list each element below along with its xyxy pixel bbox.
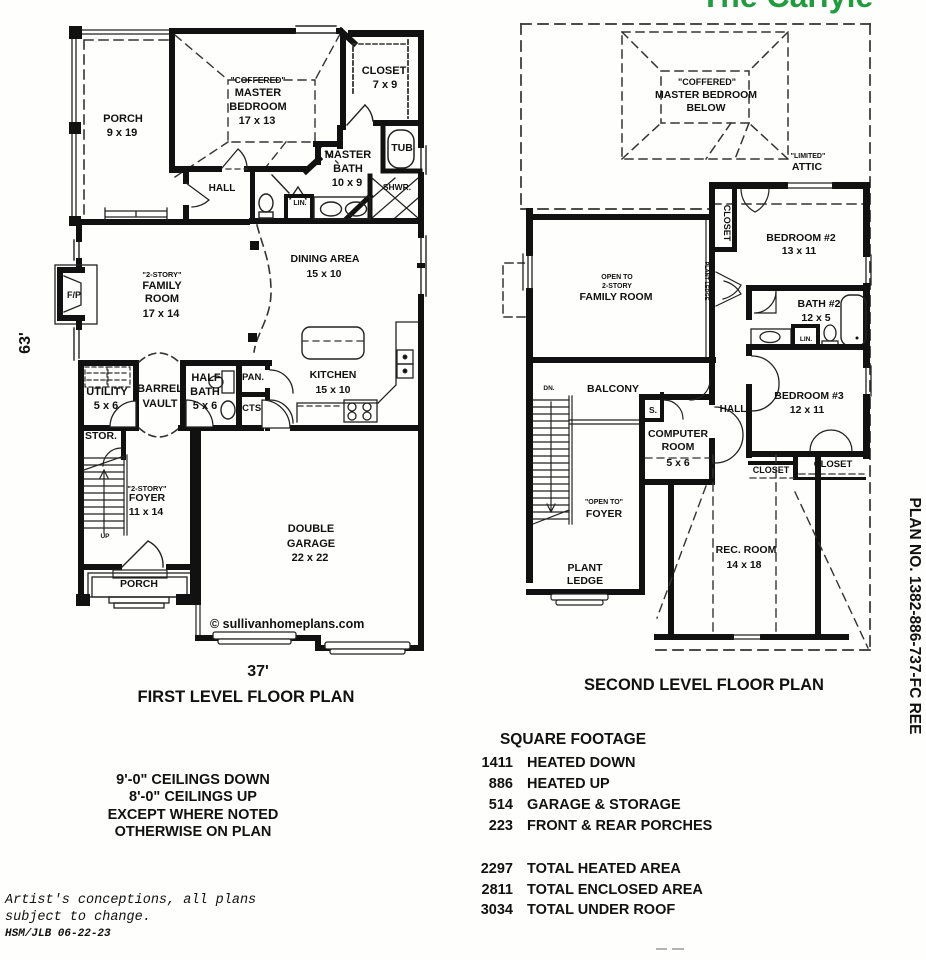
svg-text:7 x 9: 7 x 9 [373, 79, 397, 91]
svg-text:PORCH: PORCH [120, 578, 158, 590]
svg-text:886: 886 [489, 776, 513, 792]
svg-text:UTILITY: UTILITY [86, 386, 128, 398]
svg-text:LIN.: LIN. [800, 336, 812, 343]
svg-text:UP: UP [100, 533, 110, 540]
svg-text:"LIMITED": "LIMITED" [791, 153, 826, 160]
svg-text:BATH: BATH [333, 163, 363, 175]
svg-text:BEDROOM: BEDROOM [229, 101, 286, 113]
svg-text:OPEN TO: OPEN TO [601, 274, 633, 281]
svg-text:FAMILY: FAMILY [142, 280, 182, 292]
svg-text:HEATED UP: HEATED UP [527, 776, 610, 792]
svg-text:Artist's conceptions, all plan: Artist's conceptions, all plans [4, 893, 256, 908]
svg-text:HALL: HALL [209, 183, 236, 194]
svg-text:SQUARE FOOTAGE: SQUARE FOOTAGE [500, 731, 646, 748]
svg-text:37': 37' [247, 663, 269, 680]
svg-text:9'-0" CEILINGS DOWN: 9'-0" CEILINGS DOWN [116, 772, 270, 788]
svg-text:BALCONY: BALCONY [587, 383, 639, 395]
svg-text:15 x 10: 15 x 10 [306, 268, 341, 280]
svg-text:514: 514 [489, 797, 513, 813]
svg-text:DOUBLE: DOUBLE [288, 523, 334, 535]
svg-text:PLANT: PLANT [568, 562, 604, 574]
svg-text:FOYER: FOYER [586, 508, 623, 520]
svg-text:FIRST LEVEL FLOOR PLAN: FIRST LEVEL FLOOR PLAN [138, 688, 355, 706]
svg-text:9 x 19: 9 x 19 [107, 127, 138, 139]
svg-text:ROOM: ROOM [145, 293, 179, 305]
svg-text:CLOSET: CLOSET [722, 205, 732, 242]
svg-text:BATH #2: BATH #2 [798, 298, 841, 310]
svg-text:HALF: HALF [191, 372, 221, 384]
svg-text:OTHERWISE ON PLAN: OTHERWISE ON PLAN [115, 824, 272, 840]
svg-text:DINING AREA: DINING AREA [290, 253, 359, 265]
svg-text:EXCEPT WHERE NOTED: EXCEPT WHERE NOTED [108, 807, 279, 823]
svg-text:MASTER: MASTER [325, 149, 372, 161]
svg-text:CLOSET: CLOSET [753, 465, 790, 475]
svg-text:© sullivanhomeplans.com: © sullivanhomeplans.com [210, 617, 364, 631]
svg-text:PLANT LEDGE: PLANT LEDGE [703, 262, 709, 301]
svg-text:5 x 6: 5 x 6 [193, 400, 217, 412]
svg-text:LEDGE: LEDGE [567, 575, 603, 587]
svg-text:13 x 11: 13 x 11 [782, 245, 817, 257]
svg-text:SECOND LEVEL FLOOR PLAN: SECOND LEVEL FLOOR PLAN [584, 676, 824, 694]
svg-text:11 x 14: 11 x 14 [129, 506, 164, 518]
svg-text:PORCH: PORCH [103, 113, 143, 125]
svg-text:5 x 6: 5 x 6 [94, 400, 118, 412]
svg-text:ATTIC: ATTIC [792, 161, 823, 173]
svg-text:2297: 2297 [481, 861, 513, 877]
svg-text:PLAN NO. 1382-886-737-FC REE: PLAN NO. 1382-886-737-FC REE [906, 498, 923, 735]
svg-text:1411: 1411 [482, 755, 513, 771]
svg-text:TOTAL HEATED AREA: TOTAL HEATED AREA [527, 861, 681, 877]
svg-text:GARAGE & STORAGE: GARAGE & STORAGE [527, 797, 681, 813]
svg-text:REC. ROOM: REC. ROOM [716, 544, 777, 556]
svg-text:3034: 3034 [481, 902, 513, 918]
svg-text:8'-0" CEILINGS UP: 8'-0" CEILINGS UP [129, 789, 257, 805]
svg-text:2811: 2811 [482, 882, 513, 898]
svg-text:HEATED DOWN: HEATED DOWN [527, 755, 635, 771]
svg-text:12 x 5: 12 x 5 [801, 312, 830, 324]
svg-text:TOTAL UNDER ROOF: TOTAL UNDER ROOF [527, 902, 675, 918]
svg-text:subject to change.: subject to change. [5, 910, 151, 925]
svg-text:CTS.: CTS. [242, 403, 264, 414]
svg-text:SHWR.: SHWR. [383, 182, 411, 192]
svg-text:BARREL: BARREL [137, 383, 183, 395]
svg-text:GARAGE: GARAGE [287, 538, 335, 550]
svg-text:BEDROOM #3: BEDROOM #3 [774, 390, 844, 402]
svg-text:"COFFERED": "COFFERED" [231, 75, 286, 85]
svg-text:PAN.: PAN. [242, 372, 264, 383]
svg-text:17 x 13: 17 x 13 [239, 115, 276, 127]
svg-text:"OPEN TO": "OPEN TO" [585, 499, 623, 506]
svg-text:14 x 18: 14 x 18 [726, 559, 761, 571]
svg-text:"2-STORY": "2-STORY" [142, 270, 182, 279]
svg-text:10 x 9: 10 x 9 [332, 177, 363, 189]
svg-text:F/P: F/P [67, 290, 81, 300]
svg-text:BATH: BATH [190, 386, 220, 398]
svg-text:FAMILY ROOM: FAMILY ROOM [580, 291, 653, 303]
svg-text:TOTAL ENCLOSED AREA: TOTAL ENCLOSED AREA [527, 882, 703, 898]
svg-text:STOR.: STOR. [85, 430, 117, 442]
svg-text:5 x 6: 5 x 6 [666, 457, 690, 469]
svg-text:FRONT & REAR PORCHES: FRONT & REAR PORCHES [527, 818, 713, 834]
svg-text:TUB: TUB [391, 142, 413, 154]
svg-text:BEDROOM #2: BEDROOM #2 [766, 232, 836, 244]
svg-text:17 x 14: 17 x 14 [143, 308, 181, 320]
svg-text:LIN.: LIN. [293, 200, 306, 207]
svg-text:S.: S. [649, 405, 657, 415]
svg-text:MASTER: MASTER [235, 87, 282, 99]
svg-text:HSM/JLB 06-22-23: HSM/JLB 06-22-23 [5, 928, 111, 940]
svg-text:"COFFERED": "COFFERED" [678, 77, 736, 87]
svg-text:63': 63' [17, 332, 34, 354]
svg-text:223: 223 [489, 818, 513, 834]
svg-text:22 x 22: 22 x 22 [292, 552, 329, 564]
svg-text:KITCHEN: KITCHEN [310, 369, 357, 381]
svg-text:2-STORY: 2-STORY [602, 283, 632, 290]
svg-text:ROOM: ROOM [662, 441, 695, 453]
svg-text:BELOW: BELOW [686, 102, 725, 114]
svg-text:FOYER: FOYER [129, 492, 166, 504]
svg-text:VAULT: VAULT [142, 398, 177, 410]
svg-text:COMPUTER: COMPUTER [648, 428, 709, 440]
svg-text:CLOSET: CLOSET [362, 65, 407, 77]
svg-text:DN.: DN. [543, 385, 554, 392]
svg-text:HALL: HALL [720, 404, 747, 415]
svg-text:15 x 10: 15 x 10 [315, 384, 350, 396]
svg-text:The Carlyle: The Carlyle [701, 0, 874, 14]
svg-text:12 x 11: 12 x 11 [790, 404, 825, 416]
svg-text:MASTER BEDROOM: MASTER BEDROOM [655, 89, 757, 101]
